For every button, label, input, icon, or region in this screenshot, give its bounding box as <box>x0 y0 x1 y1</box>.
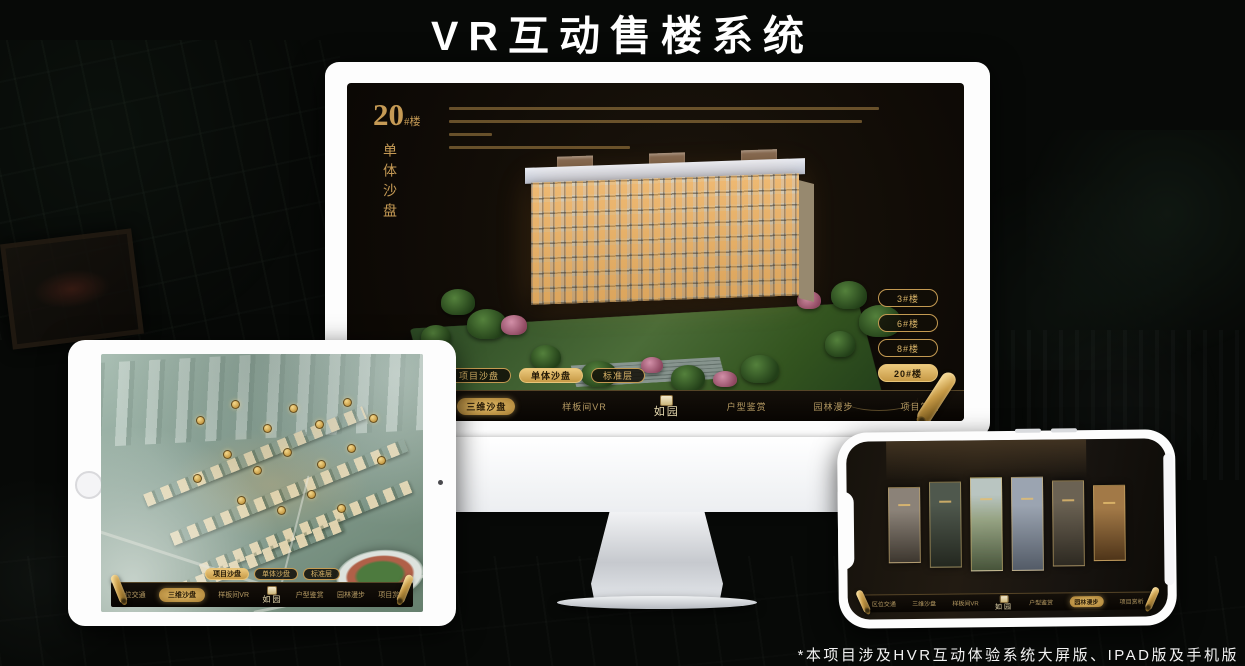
background-plaque <box>0 228 144 349</box>
building-badge[interactable] <box>223 450 232 459</box>
phone-screen: 区位交通 三维沙盘 样板间VR 如园 户型鉴赏 园林漫步 项目赏析 <box>846 438 1168 619</box>
interior-beam <box>886 439 1086 479</box>
residential-building <box>531 158 799 319</box>
tab-single-sandbox[interactable]: 单体沙盘 <box>519 368 583 383</box>
scene-panel-courtyard[interactable] <box>1052 480 1085 566</box>
nav-item-3d-sandbox[interactable]: 三维沙盘 <box>457 398 515 415</box>
nav-item-showroom-vr[interactable]: 样板间VR <box>952 598 978 607</box>
monitor-base <box>557 596 757 609</box>
camera-icon <box>438 480 443 485</box>
nav-item-floorplans[interactable]: 户型鉴赏 <box>296 590 324 600</box>
scene-panel-shelf[interactable] <box>1093 485 1126 561</box>
tree <box>825 331 855 357</box>
phone-device: 区位交通 三维沙盘 样板间VR 如园 户型鉴赏 园林漫步 项目赏析 <box>837 429 1177 629</box>
page: VR互动售楼系统 20#楼 单体沙盘 <box>0 0 1245 666</box>
building-sidewall <box>799 180 814 302</box>
scene-panel-group <box>888 475 1126 573</box>
building-badge[interactable] <box>253 466 262 475</box>
building-badge[interactable] <box>369 414 378 423</box>
building-badge[interactable] <box>231 400 240 409</box>
nav-item-showroom-vr[interactable]: 样板间VR <box>562 400 607 413</box>
building-badge[interactable] <box>237 496 246 505</box>
monitor-stand <box>591 512 723 604</box>
scroll-flourish <box>840 384 918 411</box>
nav-item-floorplans[interactable]: 户型鉴赏 <box>1029 598 1053 607</box>
nav-item-garden-walk[interactable]: 园林漫步 <box>337 590 365 600</box>
tablet-screen: 项目沙盘 单体沙盘 标准层 区位交通 三维沙盘 样板间VR 如园 户型鉴赏 园林… <box>101 354 423 612</box>
floor-button-group: 3#楼 6#楼 8#楼 20#楼 <box>878 289 938 382</box>
tablet-device: 项目沙盘 单体沙盘 标准层 区位交通 三维沙盘 样板间VR 如园 户型鉴赏 园林… <box>68 340 456 626</box>
building-number: 20 <box>373 97 404 132</box>
nav-item-showroom-vr[interactable]: 样板间VR <box>218 590 249 600</box>
brand-logo[interactable]: 如园 <box>995 594 1013 610</box>
view-tab-group: 项目沙盘 单体沙盘 标准层 <box>447 368 645 383</box>
building-badge[interactable] <box>263 424 272 433</box>
floor-button-6[interactable]: 6#楼 <box>878 314 938 332</box>
building-badge[interactable] <box>343 398 352 407</box>
nav-item-location[interactable]: 区位交通 <box>872 599 896 608</box>
building-badge[interactable] <box>317 460 326 469</box>
seal-icon <box>660 395 673 406</box>
tablet-view-tab-group: 项目沙盘 单体沙盘 标准层 <box>205 568 340 580</box>
tree <box>831 281 867 309</box>
nav-item-project-gallery[interactable]: 项目赏析 <box>1120 597 1144 606</box>
scene-panel-tower[interactable] <box>1011 477 1044 571</box>
volume-button[interactable] <box>1015 429 1041 433</box>
blossom-tree <box>501 315 527 335</box>
seal-icon <box>999 594 1008 602</box>
floor-button-3[interactable]: 3#楼 <box>878 289 938 307</box>
footnote: *本项目涉及HVR互动体验系统大屏版、IPAD版及手机版 <box>798 644 1239 665</box>
tab-project-sandbox[interactable]: 项目沙盘 <box>447 368 511 383</box>
nav-item-3d-sandbox[interactable]: 三维沙盘 <box>912 599 936 608</box>
scene-panel-landscape[interactable] <box>970 477 1003 571</box>
tree <box>671 365 705 391</box>
tree <box>741 355 779 383</box>
building-badge[interactable] <box>347 444 356 453</box>
brand-logo-text: 如园 <box>995 603 1013 610</box>
phone-notch <box>838 492 855 570</box>
building-badge[interactable] <box>337 504 346 513</box>
brand-logo[interactable]: 如园 <box>262 586 282 604</box>
background-map-texture <box>0 40 340 340</box>
blossom-tree <box>713 371 737 387</box>
building-unit: #楼 <box>404 116 421 128</box>
building-badge[interactable] <box>277 506 286 515</box>
tab-single-sandbox[interactable]: 单体沙盘 <box>254 568 298 580</box>
building-badge[interactable] <box>315 420 324 429</box>
tree <box>531 345 561 369</box>
lit-windows <box>531 173 799 304</box>
floor-button-20[interactable]: 20#楼 <box>878 364 938 382</box>
volume-button[interactable] <box>1051 428 1077 432</box>
background-river-photo <box>985 130 1245 370</box>
floor-button-8[interactable]: 8#楼 <box>878 339 938 357</box>
tablet-navbar: 区位交通 三维沙盘 样板间VR 如园 户型鉴赏 园林漫步 项目赏析 <box>111 582 413 607</box>
building-badge[interactable] <box>193 474 202 483</box>
brand-logo-text: 如园 <box>262 596 282 604</box>
phone-navbar: 区位交通 三维沙盘 样板间VR 如园 户型鉴赏 园林漫步 项目赏析 <box>864 591 1152 612</box>
tab-project-sandbox[interactable]: 项目沙盘 <box>205 568 249 580</box>
building-badge[interactable] <box>377 456 386 465</box>
nav-item-floorplans[interactable]: 户型鉴赏 <box>727 400 767 413</box>
home-button[interactable] <box>75 471 103 499</box>
building-subtitle: 单体沙盘 <box>378 143 398 273</box>
building-badge[interactable] <box>196 416 205 425</box>
building-3d-scene <box>413 141 897 401</box>
brand-logo[interactable]: 如园 <box>654 395 680 418</box>
building-title: 20#楼 <box>373 97 421 133</box>
nav-item-garden-walk[interactable]: 园林漫步 <box>1069 596 1103 607</box>
nav-item-3d-sandbox[interactable]: 三维沙盘 <box>159 588 205 602</box>
building-badge[interactable] <box>283 448 292 457</box>
building-badge[interactable] <box>307 490 316 499</box>
seal-icon <box>267 586 277 595</box>
page-title: VR互动售楼系统 <box>0 2 1245 62</box>
tree <box>441 289 475 315</box>
tab-standard-floor[interactable]: 标准层 <box>303 568 340 580</box>
scene-panel-interior[interactable] <box>888 487 921 563</box>
brand-logo-text: 如园 <box>654 407 680 418</box>
scene-panel-garage[interactable] <box>929 481 962 567</box>
building-badge[interactable] <box>289 404 298 413</box>
phone-side-bezel <box>1163 453 1174 585</box>
tab-standard-floor[interactable]: 标准层 <box>591 368 645 383</box>
